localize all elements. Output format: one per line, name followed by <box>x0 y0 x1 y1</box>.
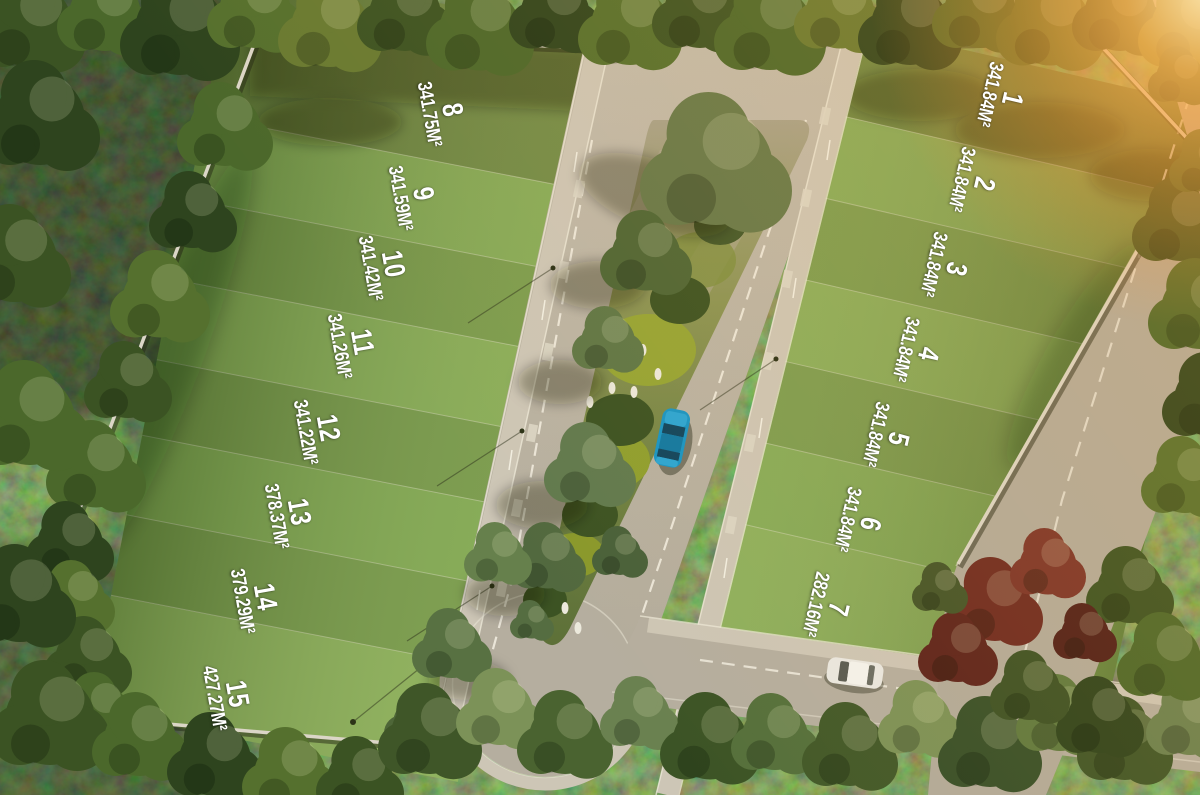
site-plan-rendering: 1 341.84M² 2 341.84M² 3 341.84M² 4 341.8… <box>0 0 1200 795</box>
sun-glare <box>0 0 1200 795</box>
aerial-render <box>0 0 1200 795</box>
